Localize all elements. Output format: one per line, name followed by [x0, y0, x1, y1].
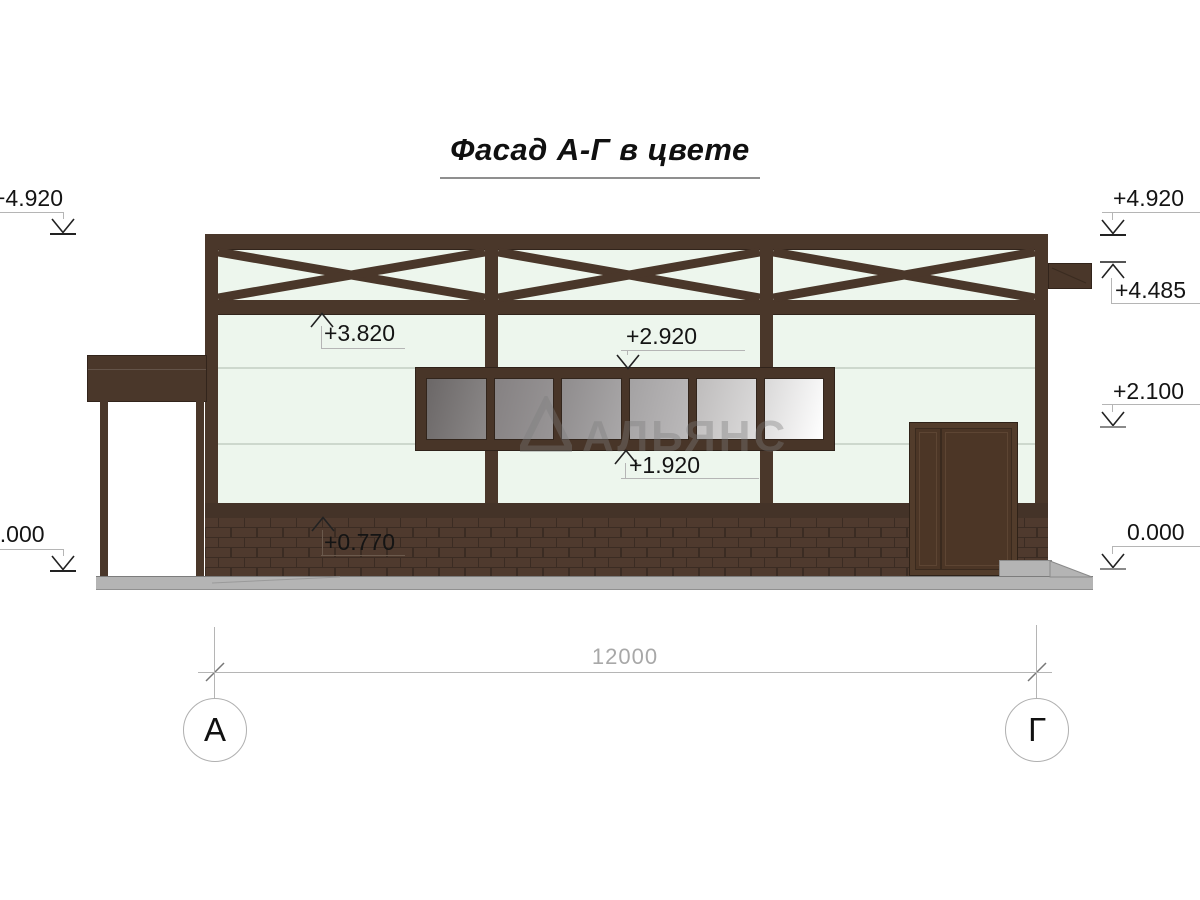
dimension-line	[198, 672, 1052, 673]
drawing-title: Фасад А-Г в цвете	[440, 132, 760, 179]
door-panel	[945, 432, 1008, 566]
elev-arrow-down-icon	[50, 218, 76, 234]
leader-line	[1111, 303, 1200, 304]
elev-tick	[1100, 426, 1126, 428]
leader-line	[1112, 546, 1200, 547]
leader-line	[621, 478, 759, 479]
entrance-door	[910, 423, 1017, 575]
facade-drawing: Фасад А-Г в цвете	[0, 0, 1200, 900]
parapet-beam	[205, 234, 1048, 250]
canopy-fascia	[87, 355, 207, 402]
leader-stem	[625, 463, 626, 479]
leader-line	[1102, 212, 1200, 213]
elev-right-truss-label: +4.485	[1115, 277, 1186, 304]
ramp-wedge	[1050, 561, 1092, 577]
canopy-fascia-seam	[88, 369, 206, 370]
leader-line	[621, 350, 745, 351]
leader-line	[321, 348, 405, 349]
elev-right-zero-label: 0.000	[1127, 519, 1185, 546]
window-pane-1	[426, 378, 487, 440]
leader-line	[0, 212, 64, 213]
axis-a-label: А	[204, 711, 226, 749]
leader-stem	[321, 326, 322, 349]
elev-tick	[50, 570, 76, 572]
elev-left-top-label: +4.920	[0, 185, 63, 212]
leader-stem	[1111, 278, 1112, 304]
axis-bubble-g: Г	[1005, 698, 1069, 762]
leader-line	[1102, 404, 1200, 405]
elev-window-top-label: +2.920	[626, 323, 697, 350]
sidewalk	[96, 576, 1093, 590]
extension-line-a	[214, 627, 215, 699]
elev-arrow-down-icon	[1100, 553, 1126, 569]
door-panel	[919, 432, 937, 566]
axis-bubble-a: А	[183, 698, 247, 762]
watermark-text: АЛЬЯНС	[582, 412, 788, 462]
canopy-post-right	[196, 400, 204, 577]
watermark-logo-icon	[520, 396, 572, 452]
elev-left-zero-label: 0.000	[0, 521, 45, 548]
door-leaf-narrow	[915, 428, 941, 570]
canopy-post-left	[100, 400, 108, 577]
elev-arrow-down-icon	[615, 354, 641, 370]
cantilever-beam	[1048, 263, 1092, 289]
elev-right-top-label: +4.920	[1113, 185, 1184, 212]
elev-tick	[1100, 234, 1126, 236]
elev-arrow-down-icon	[1100, 219, 1126, 235]
leader-stem	[322, 530, 323, 556]
elev-tick	[1100, 568, 1126, 570]
leader-line	[0, 549, 64, 550]
elev-arrow-down-icon	[50, 555, 76, 571]
elev-right-mid-label: +2.100	[1113, 378, 1184, 405]
elev-beam-label: +3.820	[324, 320, 395, 347]
extension-line-g	[1036, 625, 1037, 699]
title-block: Фасад А-Г в цвете	[0, 132, 1200, 179]
overall-dimension-label: 12000	[560, 644, 690, 670]
elev-brick-label: +0.770	[324, 529, 395, 556]
elev-arrow-down-icon	[1100, 411, 1126, 427]
leader-line	[321, 555, 405, 556]
elev-tick	[50, 233, 76, 235]
column-4	[1035, 234, 1048, 518]
watermark: АЛЬЯНС	[520, 396, 788, 462]
axis-g-label: Г	[1028, 711, 1046, 749]
door-leaf-wide	[941, 428, 1012, 570]
